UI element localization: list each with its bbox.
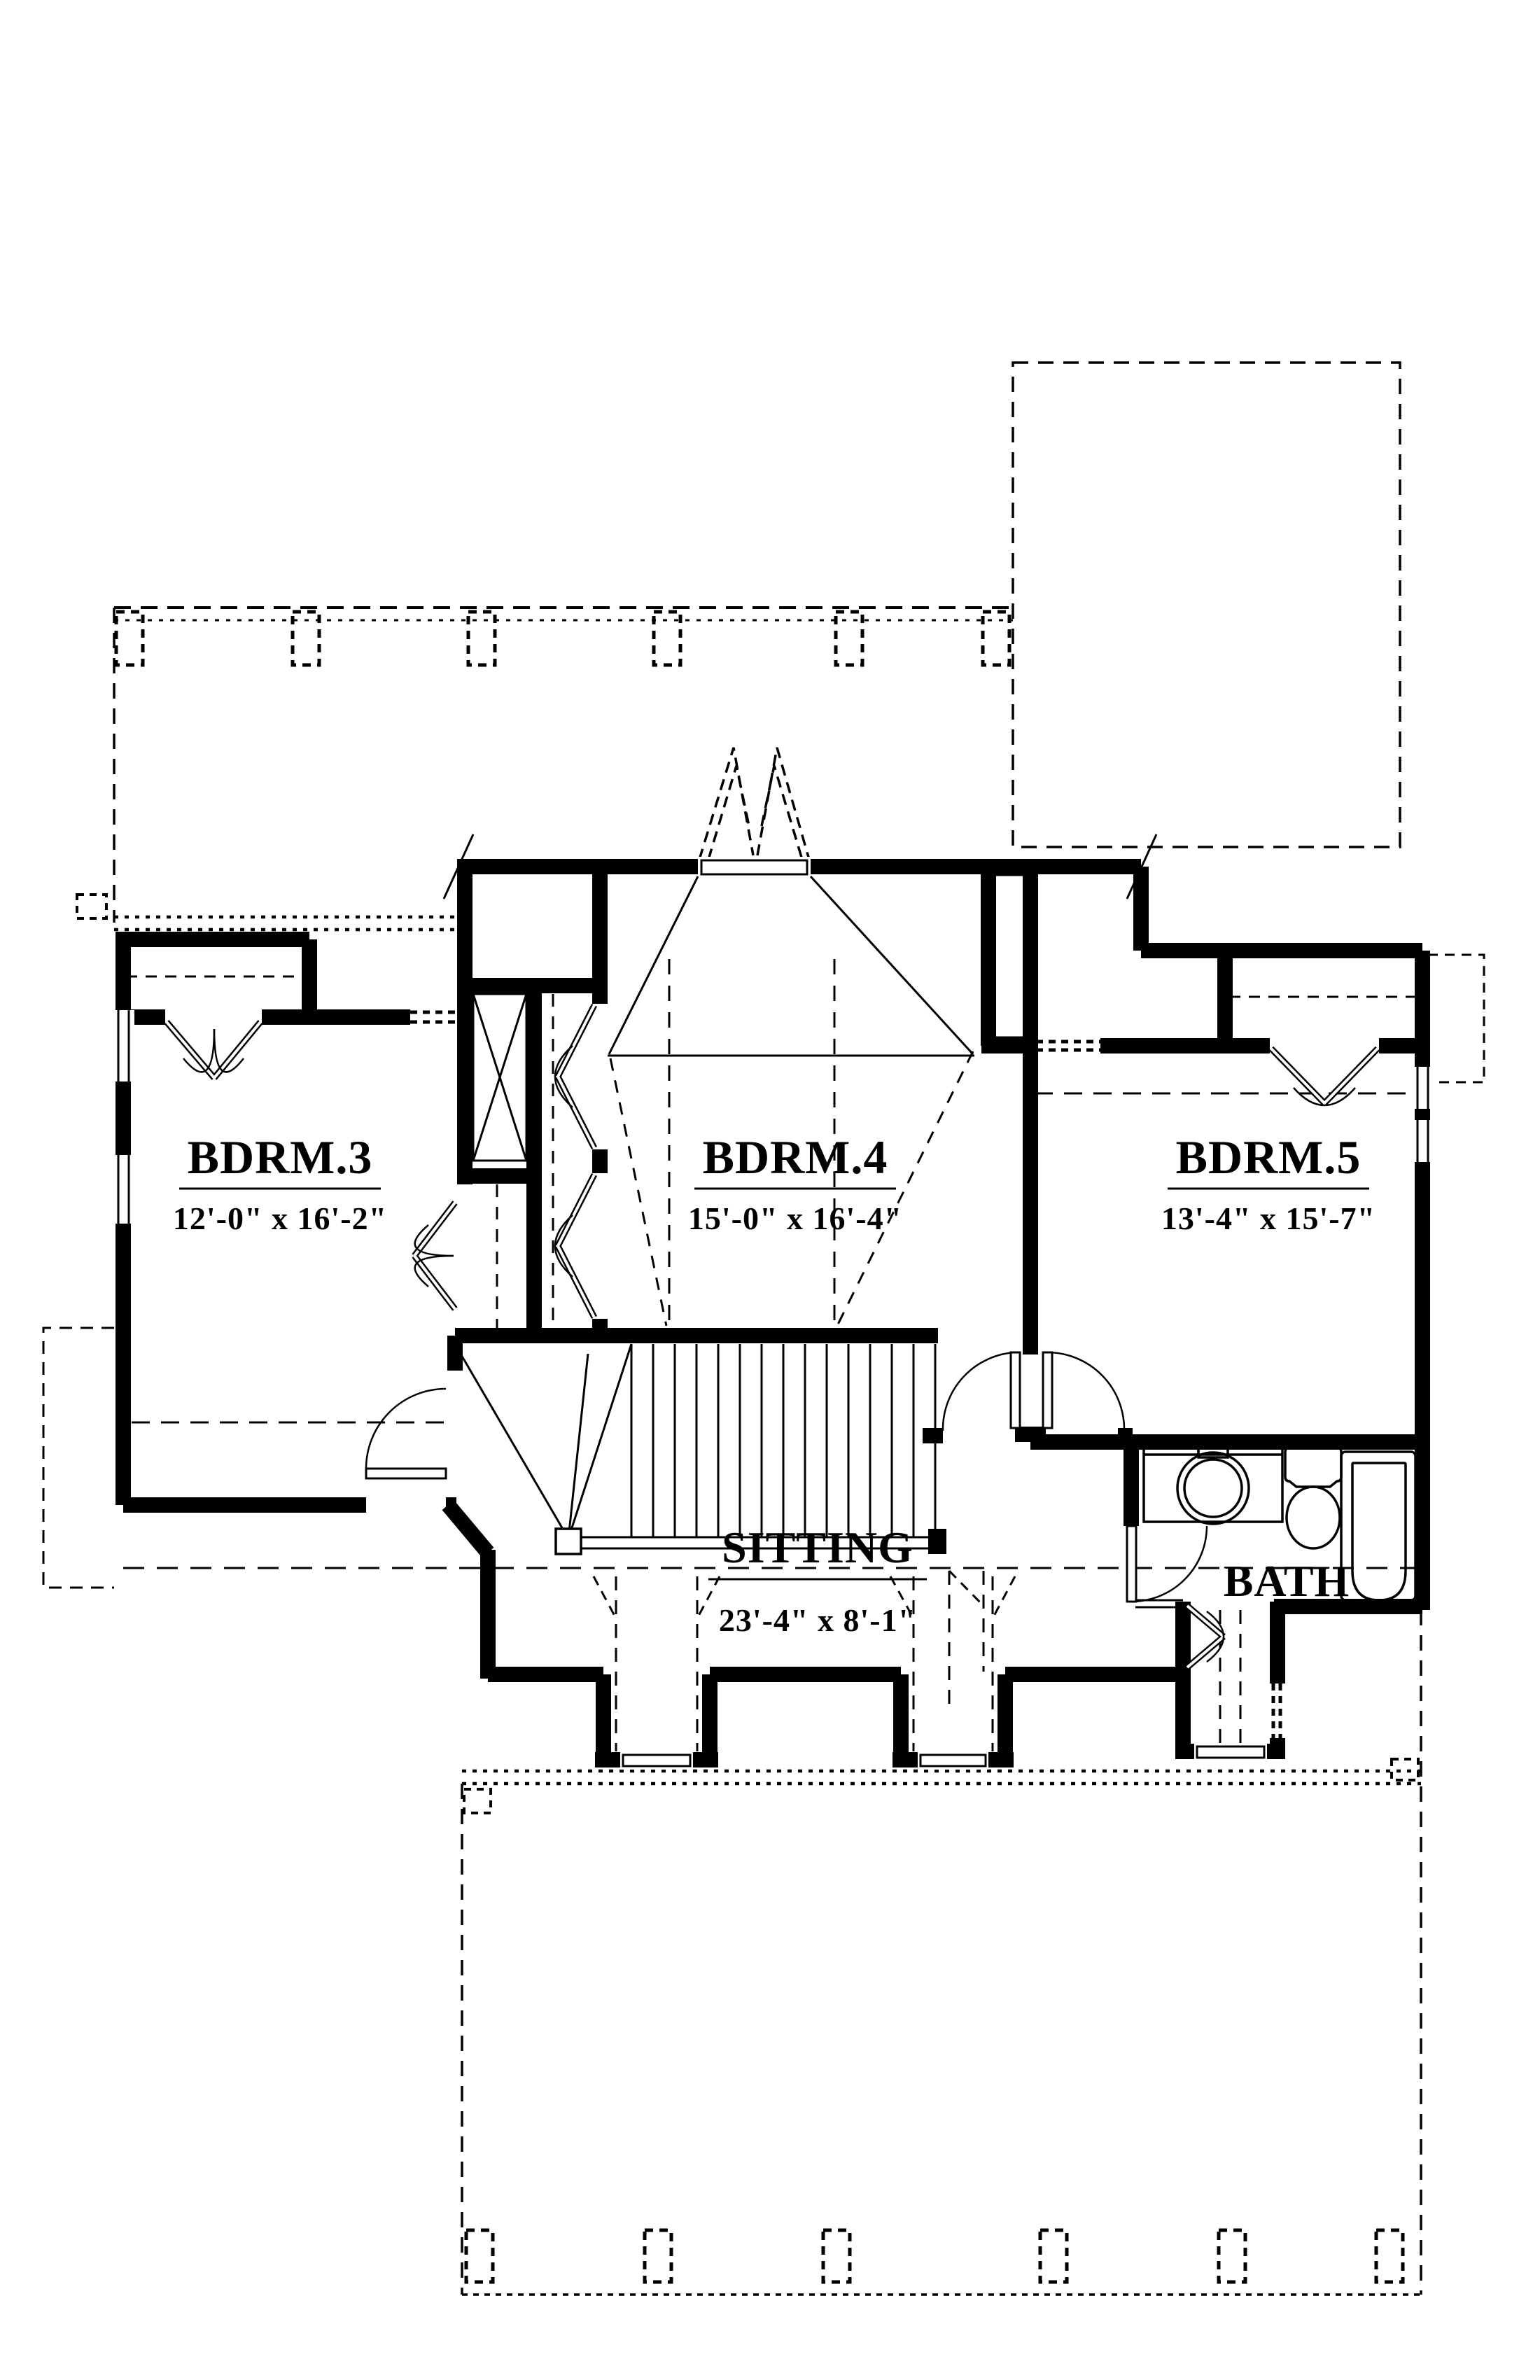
toilet-bowl — [1287, 1487, 1340, 1548]
door-vestibule — [1043, 1352, 1124, 1431]
window-right-2 — [1411, 1120, 1434, 1162]
walls-bdrm5 — [1030, 867, 1422, 1610]
porch-post — [468, 612, 495, 665]
stair-winder — [461, 1354, 568, 1539]
stairs — [461, 1344, 941, 1548]
porch-post — [823, 2230, 850, 2282]
roof-outline-top-right — [1013, 363, 1400, 847]
room-label-bdrm3: BDRM.3 — [188, 1130, 373, 1184]
porch-post — [645, 2230, 671, 2282]
window-top-center — [698, 857, 811, 878]
porch-post — [983, 612, 1009, 665]
vanity — [1144, 1446, 1282, 1524]
awning-window-symbol — [699, 748, 809, 860]
room-dims-bdrm3: 12'-0" x 16'-2" — [173, 1200, 387, 1236]
room-label-bath: BATH — [1224, 1556, 1350, 1606]
stair-rail-end — [928, 1529, 946, 1554]
floor-plan-drawing: BDRM.3 12'-0" x 16'-2" BDRM.4 15'-0" x 1… — [0, 0, 1540, 2380]
porch-step — [1392, 1759, 1418, 1780]
porch-post — [836, 612, 862, 665]
window-bay-1 — [620, 1751, 693, 1770]
toilet — [1285, 1448, 1341, 1548]
bathtub — [1341, 1452, 1415, 1600]
toilet-tank — [1285, 1448, 1341, 1487]
flue-box — [994, 875, 1025, 1037]
room-dims-sitting: 23'-4" x 8'-1" — [719, 1602, 916, 1638]
porch-top — [77, 608, 1013, 930]
room-label-sitting: SITTING — [722, 1522, 913, 1572]
window-right-1 — [1411, 1067, 1434, 1109]
porch-post — [466, 2230, 493, 2282]
porch-post — [1376, 2230, 1403, 2282]
window-left-1 — [112, 1010, 134, 1081]
room-dims-bdrm4: 15'-0" x 16'-4" — [688, 1200, 902, 1236]
porch-left — [43, 1328, 114, 1588]
dormer-recess — [608, 876, 974, 1056]
door-bdrm3 — [366, 1389, 446, 1478]
room-label-bdrm5: BDRM.5 — [1176, 1130, 1361, 1184]
sink-basin — [1177, 1452, 1249, 1524]
porch-post — [1040, 2230, 1067, 2282]
porch-step — [464, 1789, 491, 1813]
window-bay-2 — [918, 1751, 988, 1770]
door-bath — [1127, 1526, 1207, 1602]
porch-step — [77, 895, 106, 918]
stair-newel — [556, 1529, 581, 1554]
room-label-bdrm4: BDRM.4 — [703, 1130, 888, 1184]
door-bdrm5 — [943, 1352, 1020, 1431]
room-labels: BDRM.3 12'-0" x 16'-2" BDRM.4 15'-0" x 1… — [173, 1130, 1375, 1638]
window-left-2 — [112, 1155, 134, 1224]
roof-outline-right — [1428, 955, 1484, 1082]
floor-plan-sheet: BDRM.3 12'-0" x 16'-2" BDRM.4 15'-0" x 1… — [0, 0, 1540, 2380]
porch-post — [1219, 2230, 1245, 2282]
room-dims-bdrm5: 13'-4" x 15'-7" — [1161, 1200, 1375, 1236]
window-bath-bay — [1194, 1743, 1267, 1761]
chimney-chase — [473, 994, 526, 1161]
